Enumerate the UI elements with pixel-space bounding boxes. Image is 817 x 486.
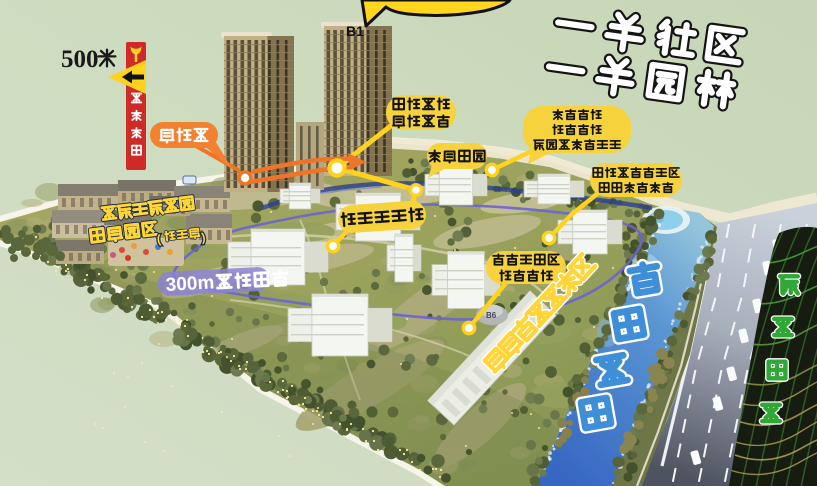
svg-text:B6: B6 <box>486 311 497 320</box>
svg-text:300m: 300m <box>165 272 215 296</box>
svg-text:500: 500 <box>61 46 99 73</box>
svg-text:B1: B1 <box>346 23 364 39</box>
